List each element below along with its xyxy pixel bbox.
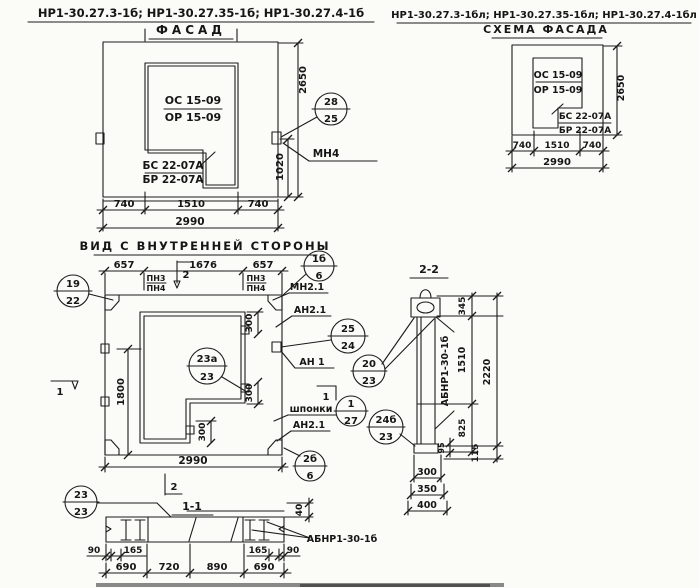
sec11-dim-90-left: 90 bbox=[88, 546, 101, 556]
label-an1: АН 1 bbox=[299, 357, 324, 368]
scheme-corner-frame: БР 22-07А bbox=[559, 126, 611, 136]
facade-dim-740-left: 740 bbox=[114, 199, 135, 210]
title-left: НР1-30.27.3-1б; НР1-30.27.35-1б; НР1-30.… bbox=[38, 6, 364, 20]
sec22-dim-1510: 1510 bbox=[457, 346, 468, 373]
scheme-dim-740-left: 740 bbox=[513, 141, 532, 151]
section-1-1-drawing: 1-1 23 23 40 bbox=[63, 486, 378, 578]
sec22-dim-400: 400 bbox=[417, 500, 437, 511]
callout-23c: 23 bbox=[362, 376, 376, 387]
section-2-2-drawing: 2-2 20 23 24б 23 АБНР1-30-1б 345 bbox=[351, 263, 503, 515]
sec11-dim-165-right: 165 bbox=[249, 546, 268, 556]
callout-23d: 23 bbox=[379, 432, 393, 443]
callout-22: 22 bbox=[66, 296, 80, 307]
callout-23: 23 bbox=[200, 372, 214, 383]
label-shponki: шпонки bbox=[290, 404, 333, 415]
sec22-dim-825: 825 bbox=[458, 419, 468, 438]
sec11-dim-890: 890 bbox=[207, 562, 228, 573]
inner-dim-2990: 2990 bbox=[178, 455, 207, 467]
corbel-left-top bbox=[105, 295, 119, 310]
callout-19: 19 bbox=[66, 279, 80, 290]
inner-dim-300-a: 300 bbox=[245, 314, 255, 333]
facade-dim-1020: 1020 bbox=[275, 153, 286, 181]
sec11-dim-690-a: 690 bbox=[116, 562, 137, 573]
sec11-dim-40: 40 bbox=[295, 504, 305, 517]
facade-callout-top: 28 bbox=[324, 97, 338, 108]
inner-dim-657-left: 657 bbox=[114, 260, 135, 271]
scheme-window-frame: ОР 15-09 bbox=[534, 85, 583, 96]
header-titles: НР1-30.27.3-1б; НР1-30.27.35-1б; НР1-30.… bbox=[28, 6, 697, 23]
edge-anchor-an1 bbox=[272, 342, 281, 352]
sec11-panel-label: АБНР1-30-1б bbox=[307, 534, 378, 545]
sec11-dim-690-b: 690 bbox=[254, 562, 275, 573]
label-an21-a: АН2.1 bbox=[294, 305, 326, 316]
sec11-dim-90-right: 90 bbox=[287, 546, 300, 556]
sec22-panel-label: АБНР1-30-1б bbox=[440, 335, 451, 406]
sec11-callout-bottom: 23 bbox=[74, 507, 88, 518]
inner-title: ВИД С ВНУТРЕННЕЙ СТОРОНЫ bbox=[79, 238, 330, 253]
facade-dim-2650: 2650 bbox=[298, 66, 309, 94]
sec11-dim-165-left: 165 bbox=[124, 546, 143, 556]
sec22-dim-2220: 2220 bbox=[482, 358, 493, 385]
scheme-dim-2650: 2650 bbox=[616, 74, 627, 101]
callout-1b: 1б bbox=[312, 253, 326, 265]
scheme-window-series: ОС 15-09 bbox=[534, 70, 583, 81]
label-an21-b: АН2.1 bbox=[293, 420, 325, 431]
scheme-dim-2990: 2990 bbox=[543, 157, 571, 168]
facade-dim-2990: 2990 bbox=[175, 216, 204, 228]
facade-dim-1510: 1510 bbox=[177, 199, 205, 210]
inner-section-mark-2-bottom: 2 bbox=[171, 482, 178, 493]
sec22-title: 2-2 bbox=[419, 263, 439, 276]
drawing-sheet: НР1-30.27.3-1б; НР1-30.27.35-1б; НР1-30.… bbox=[0, 0, 699, 588]
facade-drawing: ФАСАД ОС 15-09 ОР 15-09 БС 22-07А БР 22-… bbox=[96, 23, 377, 232]
scheme-dim-1510: 1510 bbox=[544, 141, 569, 151]
inner-pn4-right: ПН4 bbox=[247, 284, 266, 293]
scheme-corner-series: БС 22-07А bbox=[559, 112, 611, 122]
callout-27: 27 bbox=[344, 416, 358, 427]
callout-2b: 2б bbox=[303, 453, 317, 465]
facade-window-series: ОС 15-09 bbox=[165, 94, 221, 107]
facade-anchor-label: МН4 bbox=[313, 148, 340, 160]
sec11-callout-top: 23 bbox=[74, 490, 88, 501]
scheme-title: СХЕМА ФАСАДА bbox=[483, 23, 609, 36]
scheme-dim-740-right: 740 bbox=[583, 141, 602, 151]
sec22-dim-345: 345 bbox=[458, 297, 468, 316]
sec11-dim-720: 720 bbox=[159, 562, 180, 573]
inner-section-mark-2-top: 2 bbox=[183, 270, 190, 281]
inner-section-mark-1-right: 1 bbox=[323, 392, 330, 403]
inner-pn3-left: ПН3 bbox=[147, 274, 166, 283]
callout-23a: 23а bbox=[197, 354, 218, 365]
inner-dim-657-right: 657 bbox=[253, 260, 274, 271]
callout-25: 25 bbox=[341, 324, 355, 335]
callout-20: 20 bbox=[362, 359, 376, 370]
inner-view-drawing: ВИД С ВНУТРЕННЕЙ СТОРОНЫ 657 1676 657 ПН… bbox=[51, 238, 368, 495]
corbel-right-bottom bbox=[268, 440, 282, 455]
inner-dim-300-c: 300 bbox=[198, 423, 208, 442]
facade-corner-series: БС 22-07А bbox=[142, 160, 204, 172]
facade-window-frame: ОР 15-09 bbox=[165, 111, 221, 124]
callout-6b: 6 bbox=[307, 471, 314, 482]
corbel-left-bottom bbox=[105, 440, 119, 455]
sec22-dim-115: 115 bbox=[471, 444, 481, 463]
inner-pn3-right: ПН3 bbox=[247, 274, 266, 283]
callout-24b: 24б bbox=[376, 414, 397, 426]
drawing-canvas: НР1-30.27.3-1б; НР1-30.27.35-1б; НР1-30.… bbox=[0, 0, 699, 588]
sec22-dim-350: 350 bbox=[417, 484, 437, 495]
facade-scheme-drawing: СХЕМА ФАСАДА ОС 15-09 ОР 15-09 БС 22-07А… bbox=[483, 23, 627, 172]
scan-artifact bbox=[300, 584, 490, 587]
inner-dim-1800: 1800 bbox=[116, 378, 127, 406]
facade-dim-740-right: 740 bbox=[248, 199, 269, 210]
inner-section-mark-1-left: 1 bbox=[57, 387, 64, 398]
title-right: НР1-30.27.3-1бл; НР1-30.27.35-1бл; НР1-3… bbox=[391, 9, 697, 21]
facade-corner-frame: БР 22-07А bbox=[142, 174, 204, 186]
sec22-dim-300: 300 bbox=[417, 467, 437, 478]
inner-dim-300-b: 300 bbox=[245, 384, 255, 403]
callout-6: 6 bbox=[316, 271, 323, 282]
inner-dim-1676: 1676 bbox=[189, 260, 217, 271]
callout-1: 1 bbox=[348, 399, 355, 410]
inner-pn4-left: ПН4 bbox=[147, 284, 166, 293]
facade-title: ФАСАД bbox=[156, 23, 226, 37]
label-mn21: МН2.1 bbox=[290, 282, 324, 293]
sec22-dim-95: 95 bbox=[437, 442, 446, 454]
callout-24: 24 bbox=[341, 341, 355, 352]
facade-callout-bottom: 25 bbox=[324, 114, 338, 125]
